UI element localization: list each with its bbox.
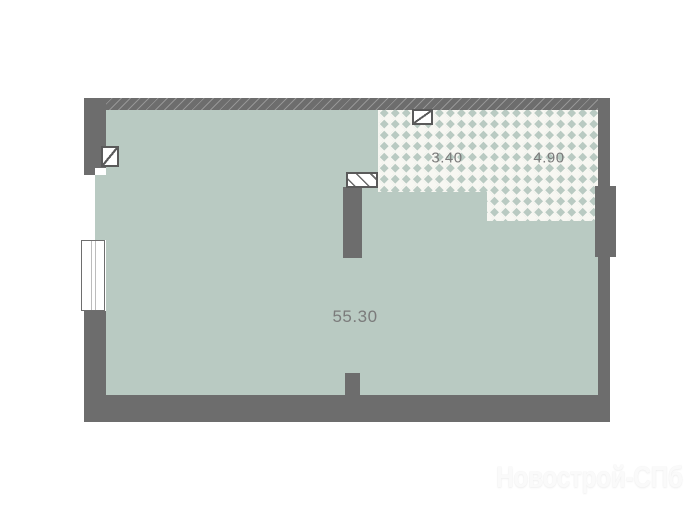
vent-shaft-icon (101, 146, 119, 167)
room-area-label: 3.40 (431, 150, 462, 167)
glazed-partition-icon (346, 172, 378, 188)
room-area-label: 55.30 (332, 307, 377, 327)
wall-bottom (84, 395, 610, 422)
watermark: Новострой-СПб (496, 461, 683, 495)
wall-right (598, 98, 610, 422)
wall-stub-bottom (345, 373, 360, 395)
wall-right-ledge (595, 186, 616, 257)
vent-shaft-icon (412, 109, 433, 125)
window-icon (81, 240, 105, 311)
wall-left-upper-step (84, 168, 95, 175)
partition-wall (343, 187, 362, 258)
wall-top (84, 98, 610, 110)
entry-opening-floor (95, 175, 106, 240)
room-area-label: 4.90 (533, 150, 564, 167)
floor-plan: 3.40 4.90 55.30 Новострой-СПб (0, 0, 700, 524)
wall-left-lower (84, 311, 106, 422)
